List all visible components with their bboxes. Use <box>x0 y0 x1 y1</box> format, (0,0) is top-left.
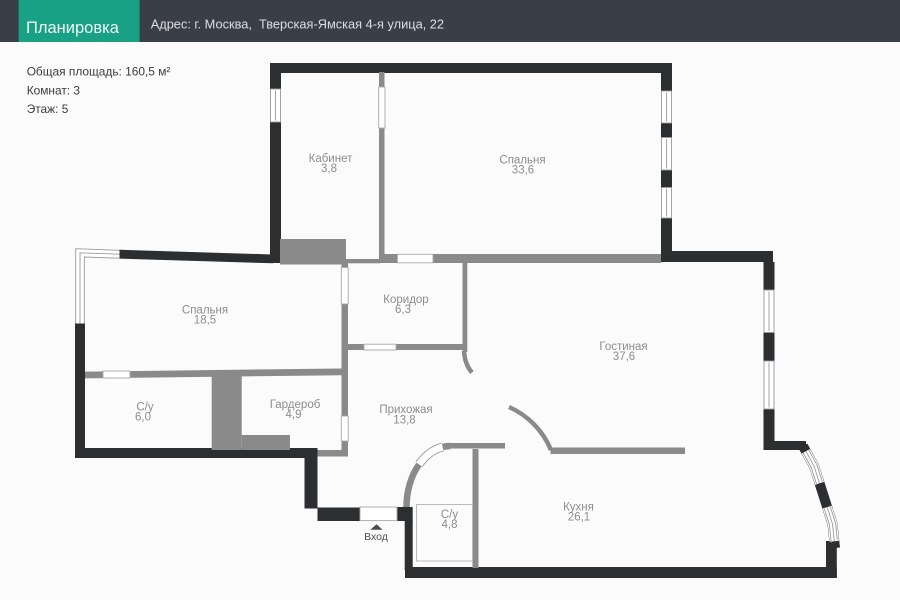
svg-text:18,5: 18,5 <box>194 315 216 327</box>
svg-text:33,6: 33,6 <box>512 165 534 177</box>
svg-text:26,1: 26,1 <box>568 512 590 524</box>
svg-text:6,3: 6,3 <box>395 304 411 316</box>
svg-text:13,8: 13,8 <box>393 414 415 426</box>
svg-text:Этаж: 5: Этаж: 5 <box>27 102 69 116</box>
svg-text:4,9: 4,9 <box>286 409 302 421</box>
svg-text:4,8: 4,8 <box>442 519 458 531</box>
svg-text:Вход: Вход <box>364 531 388 543</box>
svg-text:Общая площадь: 160,5 м²: Общая площадь: 160,5 м² <box>27 65 171 79</box>
svg-text:37,6: 37,6 <box>613 351 635 363</box>
svg-text:6,0: 6,0 <box>135 412 151 424</box>
svg-text:3,8: 3,8 <box>321 163 337 175</box>
svg-text:Комнат: 3: Комнат: 3 <box>27 83 81 97</box>
svg-text:Адрес: г. Москва, Тверская-Ям: Адрес: г. Москва, Тверская-Ямская 4-я ул… <box>151 16 444 31</box>
svg-text:Планировка: Планировка <box>26 19 120 37</box>
